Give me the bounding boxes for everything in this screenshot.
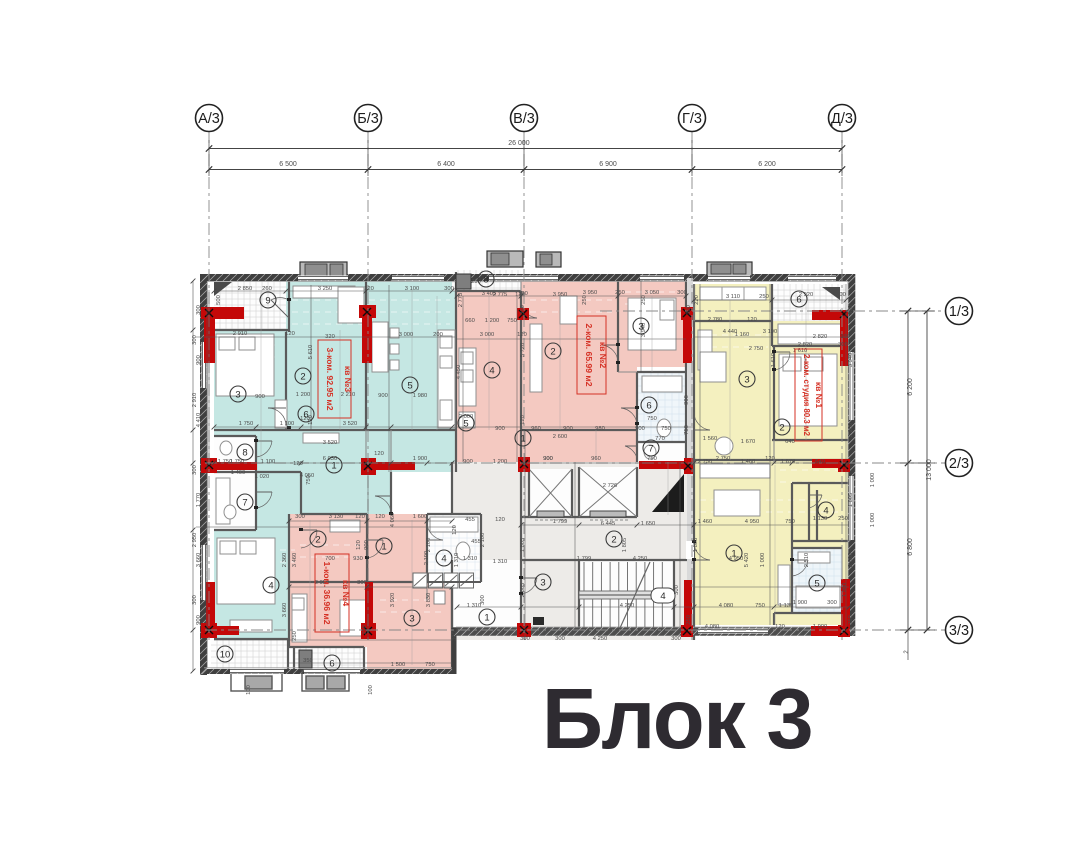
svg-text:300: 300: [357, 580, 367, 586]
svg-text:900: 900: [463, 459, 473, 465]
svg-text:250: 250: [615, 290, 625, 296]
svg-text:120: 120: [364, 286, 374, 292]
svg-text:3 190: 3 190: [763, 329, 778, 335]
svg-text:1 200: 1 200: [485, 318, 500, 324]
svg-text:1 900: 1 900: [842, 583, 848, 598]
svg-text:300: 300: [196, 305, 202, 315]
svg-text:1 670: 1 670: [741, 439, 756, 445]
svg-text:1 460: 1 460: [698, 519, 713, 525]
svg-text:6 400: 6 400: [437, 161, 455, 168]
svg-text:6: 6: [646, 400, 651, 411]
svg-text:300: 300: [452, 631, 458, 641]
svg-text:1 799: 1 799: [553, 519, 568, 525]
svg-text:9: 9: [265, 295, 270, 306]
svg-text:10: 10: [220, 649, 231, 660]
svg-text:120: 120: [517, 332, 527, 338]
svg-text:1 560: 1 560: [703, 436, 718, 442]
svg-text:1 000: 1 000: [870, 513, 876, 528]
svg-text:2 360: 2 360: [282, 553, 288, 568]
svg-text:2 200: 2 200: [848, 423, 854, 438]
svg-text:300: 300: [674, 585, 680, 595]
svg-text:1 900: 1 900: [413, 456, 428, 462]
svg-text:770: 770: [655, 436, 665, 442]
svg-text:13 000: 13 000: [926, 459, 933, 481]
svg-text:1 100: 1 100: [261, 459, 276, 465]
svg-text:250: 250: [641, 295, 647, 305]
svg-text:1 805: 1 805: [848, 493, 854, 508]
svg-text:5 610: 5 610: [308, 345, 314, 360]
svg-text:3 100: 3 100: [405, 286, 420, 292]
svg-text:2 775: 2 775: [493, 292, 508, 298]
svg-text:250: 250: [848, 615, 854, 625]
svg-text:3: 3: [409, 613, 414, 624]
svg-text:3 830: 3 830: [426, 593, 432, 608]
svg-text:250: 250: [759, 294, 769, 300]
svg-text:1 130: 1 130: [779, 603, 794, 609]
svg-text:300: 300: [677, 290, 687, 296]
svg-text:250: 250: [686, 615, 692, 625]
svg-text:2: 2: [550, 346, 555, 357]
svg-text:980: 980: [595, 426, 605, 432]
svg-text:300: 300: [838, 342, 848, 348]
svg-text:1-ком. 36.96 м2: 1-ком. 36.96 м2: [322, 561, 332, 624]
svg-text:1 900: 1 900: [793, 600, 808, 606]
svg-text:100: 100: [836, 292, 846, 298]
svg-text:300: 300: [520, 636, 530, 642]
svg-text:3 660: 3 660: [282, 603, 288, 618]
svg-text:300: 300: [192, 335, 198, 345]
svg-text:750: 750: [755, 603, 765, 609]
svg-text:А/3: А/3: [198, 111, 220, 127]
svg-text:300: 300: [295, 514, 305, 520]
svg-text:3 110: 3 110: [726, 294, 740, 300]
svg-text:4: 4: [489, 365, 494, 376]
svg-text:120: 120: [765, 456, 775, 462]
svg-text:750: 750: [785, 519, 795, 525]
svg-text:3: 3: [744, 374, 749, 385]
svg-text:1 310: 1 310: [454, 553, 460, 568]
svg-text:1 400: 1 400: [231, 470, 246, 476]
svg-text:Д/3: Д/3: [831, 111, 853, 127]
svg-text:1 020: 1 020: [255, 474, 270, 480]
svg-text:7: 7: [648, 443, 653, 454]
svg-text:900: 900: [543, 456, 553, 462]
svg-text:3 950: 3 950: [583, 290, 598, 296]
svg-text:6 200: 6 200: [758, 161, 776, 168]
svg-text:300: 300: [840, 334, 850, 340]
svg-text:2 605: 2 605: [520, 583, 526, 598]
svg-text:2 100: 2 100: [480, 533, 486, 548]
svg-text:4 950: 4 950: [745, 519, 760, 525]
svg-text:4: 4: [268, 580, 273, 591]
svg-text:4 080: 4 080: [719, 603, 734, 609]
svg-text:930: 930: [353, 556, 363, 562]
svg-text:2 600: 2 600: [553, 434, 568, 440]
svg-text:120: 120: [520, 415, 526, 425]
svg-text:250: 250: [292, 631, 298, 641]
svg-text:3 000: 3 000: [480, 332, 495, 338]
svg-text:5: 5: [463, 418, 468, 429]
svg-text:120: 120: [747, 317, 757, 323]
svg-text:1 310: 1 310: [463, 556, 478, 562]
svg-text:7: 7: [242, 497, 247, 508]
svg-text:4 060: 4 060: [390, 513, 396, 528]
svg-text:250: 250: [362, 625, 368, 635]
svg-text:1 500: 1 500: [391, 662, 406, 668]
svg-text:260: 260: [262, 286, 272, 292]
svg-text:1 750: 1 750: [239, 421, 254, 427]
svg-text:3 520: 3 520: [323, 440, 338, 446]
svg-text:4 250: 4 250: [620, 603, 635, 609]
svg-text:300: 300: [827, 600, 837, 606]
svg-text:900: 900: [196, 615, 202, 625]
svg-text:1 650: 1 650: [641, 521, 656, 527]
svg-text:кв №3: кв №3: [343, 366, 353, 393]
svg-text:1 770: 1 770: [196, 493, 202, 508]
svg-text:2 726: 2 726: [603, 483, 618, 489]
svg-text:100: 100: [368, 685, 374, 695]
svg-text:8: 8: [242, 447, 247, 458]
svg-text:кв №4: кв №4: [341, 580, 351, 607]
svg-text:1: 1: [331, 460, 336, 471]
svg-text:В/3: В/3: [513, 111, 535, 127]
svg-text:750: 750: [647, 416, 657, 422]
svg-text:2-ком. 65.99 м2: 2-ком. 65.99 м2: [584, 323, 594, 386]
svg-text:750: 750: [306, 475, 312, 485]
svg-text:1 799: 1 799: [577, 556, 592, 562]
svg-text:3 940: 3 940: [848, 353, 854, 368]
svg-text:3 520: 3 520: [343, 421, 358, 427]
svg-text:5: 5: [814, 578, 819, 589]
svg-text:5 720: 5 720: [520, 343, 526, 358]
svg-text:660: 660: [465, 318, 475, 324]
svg-text:1 000: 1 000: [870, 473, 876, 488]
svg-text:640: 640: [815, 459, 825, 465]
svg-text:350: 350: [303, 658, 313, 664]
svg-text:6 900: 6 900: [599, 161, 617, 168]
svg-text:900: 900: [495, 426, 505, 432]
svg-text:Блок 3: Блок 3: [542, 672, 812, 767]
svg-text:кв №2: кв №2: [598, 342, 608, 369]
svg-text:4 250: 4 250: [593, 636, 608, 642]
svg-text:750: 750: [425, 662, 435, 668]
svg-text:1 100: 1 100: [280, 421, 295, 427]
svg-text:300: 300: [192, 465, 198, 475]
svg-text:2 510: 2 510: [804, 553, 810, 568]
svg-text:120: 120: [775, 624, 785, 630]
svg-text:2/3: 2/3: [949, 456, 969, 472]
svg-text:2 910: 2 910: [192, 393, 198, 408]
svg-text:300: 300: [480, 595, 486, 605]
svg-text:120: 120: [452, 525, 458, 535]
svg-text:960: 960: [591, 456, 601, 462]
svg-text:2 850: 2 850: [238, 286, 253, 292]
svg-text:220: 220: [694, 295, 700, 305]
svg-text:1: 1: [520, 433, 525, 444]
svg-text:5: 5: [407, 380, 412, 391]
svg-text:1: 1: [484, 612, 489, 623]
svg-text:1 600: 1 600: [413, 514, 428, 520]
svg-text:900: 900: [684, 395, 690, 405]
svg-text:900: 900: [196, 355, 202, 365]
svg-text:300: 300: [520, 305, 526, 315]
svg-text:320: 320: [325, 334, 335, 340]
svg-text:6 500: 6 500: [279, 161, 297, 168]
svg-text:960: 960: [531, 426, 541, 432]
svg-text:2: 2: [779, 422, 784, 433]
svg-text:Б/3: Б/3: [357, 111, 379, 127]
svg-text:120: 120: [515, 292, 525, 298]
svg-text:кв №1: кв №1: [814, 382, 824, 409]
svg-text:300: 300: [555, 636, 565, 642]
svg-text:2 750: 2 750: [749, 346, 764, 352]
svg-text:120: 120: [375, 514, 385, 520]
svg-text:3/3: 3/3: [949, 623, 969, 639]
svg-text:2 100: 2 100: [426, 538, 432, 553]
svg-text:750: 750: [647, 456, 657, 462]
svg-text:2 100: 2 100: [424, 551, 430, 566]
svg-text:3 250: 3 250: [318, 286, 333, 292]
svg-text:300: 300: [444, 286, 454, 292]
svg-text:1/3: 1/3: [949, 304, 969, 320]
svg-text:250: 250: [838, 516, 848, 522]
svg-text:120: 120: [374, 451, 384, 457]
svg-text:Г/3: Г/3: [682, 111, 702, 127]
svg-text:900: 900: [635, 426, 645, 432]
svg-text:120: 120: [293, 461, 303, 467]
svg-text:200: 200: [433, 332, 443, 338]
svg-text:1 900: 1 900: [813, 624, 828, 630]
svg-text:4 250: 4 250: [633, 556, 648, 562]
svg-text:3-ком. 92.95 м2: 3-ком. 92.95 м2: [325, 347, 335, 410]
svg-text:750: 750: [684, 425, 690, 435]
svg-text:750: 750: [661, 426, 671, 432]
svg-text:5 420: 5 420: [744, 553, 750, 568]
svg-text:1 750: 1 750: [218, 459, 233, 465]
svg-text:4: 4: [823, 505, 828, 516]
svg-text:4 080: 4 080: [705, 624, 720, 630]
svg-text:2 820: 2 820: [798, 342, 813, 348]
svg-text:4 440: 4 440: [723, 329, 738, 335]
svg-text:2 605: 2 605: [848, 553, 854, 568]
svg-text:2 780: 2 780: [708, 317, 723, 323]
svg-text:2 210: 2 210: [341, 392, 356, 398]
svg-text:1 130: 1 130: [813, 516, 828, 522]
svg-text:1: 1: [381, 541, 386, 552]
svg-text:300: 300: [686, 305, 692, 315]
svg-text:3: 3: [235, 389, 240, 400]
svg-text:3 000: 3 000: [399, 332, 414, 338]
svg-text:900: 900: [378, 393, 388, 399]
svg-text:640: 640: [785, 439, 795, 445]
svg-text:1 310: 1 310: [493, 559, 508, 565]
svg-text:4: 4: [441, 553, 446, 564]
svg-text:3 950: 3 950: [553, 292, 568, 298]
svg-text:3 920: 3 920: [390, 593, 396, 608]
svg-text:120: 120: [285, 331, 295, 337]
svg-text:1 980: 1 980: [413, 393, 428, 399]
svg-text:300: 300: [192, 595, 198, 605]
svg-text:120: 120: [355, 514, 365, 520]
svg-text:900: 900: [255, 394, 265, 400]
svg-text:250: 250: [582, 295, 588, 305]
svg-text:1 805: 1 805: [520, 538, 526, 553]
svg-text:2 775: 2 775: [458, 293, 464, 308]
svg-text:900: 900: [364, 540, 370, 550]
svg-text:26 000: 26 000: [508, 140, 530, 147]
svg-text:3 050: 3 050: [645, 290, 660, 296]
svg-text:3 130: 3 130: [329, 514, 344, 520]
svg-text:2 750: 2 750: [698, 459, 713, 465]
svg-text:2: 2: [611, 534, 616, 545]
svg-text:300: 300: [848, 305, 854, 315]
svg-text:1 805: 1 805: [622, 538, 628, 553]
svg-text:2 950: 2 950: [192, 533, 198, 548]
svg-text:2: 2: [315, 534, 320, 545]
svg-text:6: 6: [329, 658, 334, 669]
svg-text:8: 8: [483, 274, 488, 285]
svg-text:1 610: 1 610: [771, 353, 777, 368]
svg-text:6: 6: [796, 294, 801, 305]
svg-text:1 000: 1 000: [760, 553, 766, 568]
svg-text:300: 300: [671, 636, 681, 642]
svg-text:6 800: 6 800: [907, 538, 914, 556]
svg-text:6: 6: [303, 409, 308, 420]
svg-text:3 660: 3 660: [196, 553, 202, 568]
svg-text:500: 500: [216, 295, 222, 305]
svg-text:3: 3: [540, 577, 545, 588]
svg-text:900: 900: [563, 426, 573, 432]
svg-text:455: 455: [465, 517, 475, 523]
svg-text:4: 4: [660, 591, 665, 602]
svg-text:1 200: 1 200: [296, 392, 311, 398]
svg-text:100: 100: [246, 685, 252, 695]
svg-text:120: 120: [356, 540, 362, 550]
svg-text:6 200: 6 200: [907, 378, 914, 396]
svg-text:1 670: 1 670: [781, 459, 796, 465]
svg-text:3 460: 3 460: [292, 553, 298, 568]
svg-text:6 445: 6 445: [601, 521, 616, 527]
svg-text:2: 2: [300, 371, 305, 382]
svg-text:2-ком. студия 80.3 м2: 2-ком. студия 80.3 м2: [802, 354, 811, 437]
svg-text:4 410: 4 410: [196, 413, 202, 428]
svg-text:1: 1: [731, 548, 736, 559]
svg-text:2 910: 2 910: [233, 331, 248, 337]
svg-text:1 200: 1 200: [493, 459, 508, 465]
svg-text:750: 750: [507, 318, 517, 324]
svg-text:3: 3: [638, 321, 643, 332]
svg-text:2 820: 2 820: [813, 334, 828, 340]
svg-text:120: 120: [495, 517, 505, 523]
svg-text:1 805: 1 805: [693, 538, 699, 553]
svg-text:1 460: 1 460: [741, 459, 756, 465]
svg-text:4 450: 4 450: [456, 365, 462, 380]
svg-text:2 750: 2 750: [716, 456, 731, 462]
